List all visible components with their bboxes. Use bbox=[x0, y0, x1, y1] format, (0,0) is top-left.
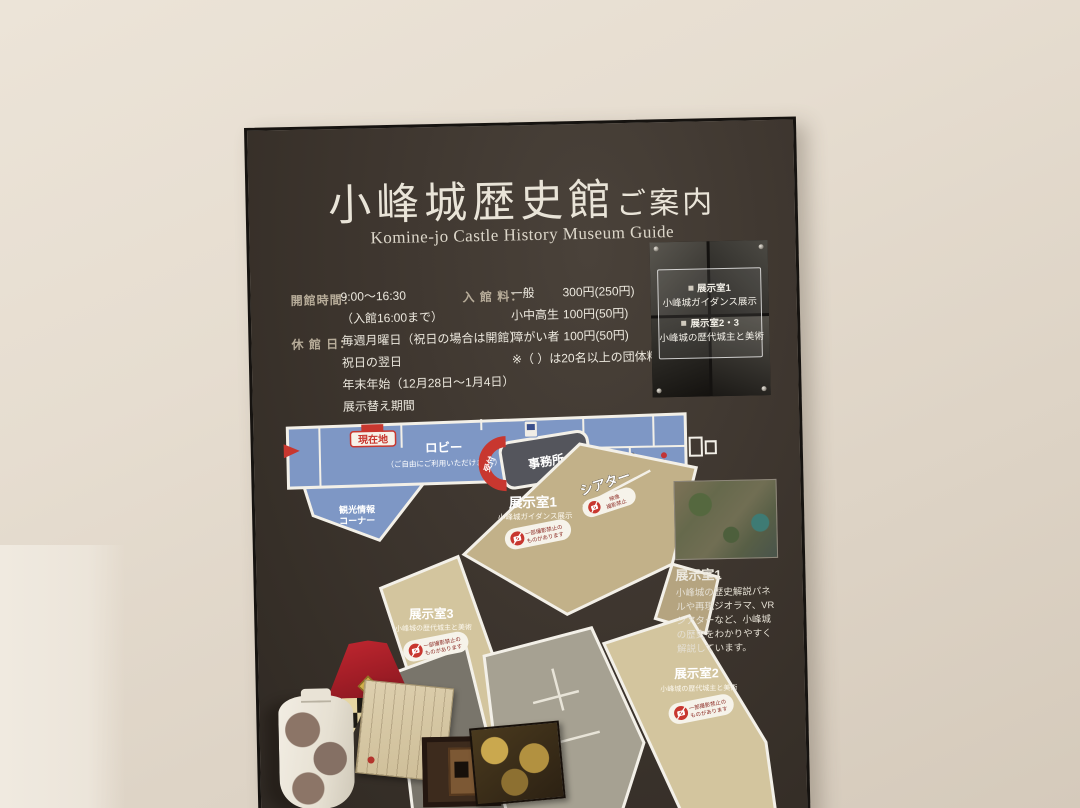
exhibit-photo-plaque: 展示室1 小峰城ガイダンス展示 展示室2・3 小峰城の歴代城主と美術 bbox=[649, 240, 770, 397]
hours-value: 9:00〜16:30 （入館16:00まで） bbox=[340, 284, 443, 330]
museum-sign-board: 小峰城歴史館ご案内 Komine-jo Castle History Museu… bbox=[244, 116, 811, 808]
admission-item: 小中高生 bbox=[511, 303, 563, 326]
gold-lacquer-box-photo bbox=[469, 720, 566, 806]
admission-item: 障がい者 bbox=[511, 325, 563, 348]
closed-line: 年末年始（12月28日〜1月4日） bbox=[342, 370, 522, 396]
admission-price: 100円(50円) bbox=[563, 302, 629, 325]
plaque-glass-plate: 展示室1 小峰城ガイダンス展示 展示室2・3 小峰城の歴代城主と美術 bbox=[657, 267, 763, 359]
closed-days-list: 毎週月曜日（祝日の場合は開館） 祝日の翌日 年末年始（12月28日〜1月4日） … bbox=[341, 326, 523, 418]
map-side-entry-walls bbox=[690, 437, 716, 456]
wall-corner-highlight bbox=[0, 545, 125, 808]
sign-title-suffix: ご案内 bbox=[616, 186, 716, 221]
screw-icon bbox=[657, 388, 662, 393]
admission-table: 一般 300円(250円) 小中高生 100円(50円) 障がい者 100円(5… bbox=[510, 279, 671, 370]
screw-icon bbox=[759, 244, 764, 249]
room1-detail-block: 展示室1 小峰城の歴史解説パネルや再現ジオラマ、VRシアターなど、小峰城の歴史を… bbox=[673, 479, 780, 657]
room-bullet-icon bbox=[688, 285, 693, 290]
small-facility-icon bbox=[524, 421, 537, 437]
lobby-label: ロビー bbox=[425, 439, 463, 455]
plaque-line: 小峰城ガイダンス展示 bbox=[659, 296, 761, 310]
admission-price: 300円(250円) bbox=[562, 280, 634, 304]
info-corner-label: コーナー bbox=[339, 515, 375, 526]
room-bullet-icon bbox=[681, 320, 686, 325]
admission-price: 100円(50円) bbox=[563, 324, 629, 347]
room1-label: 展示室1 bbox=[509, 494, 558, 511]
admission-note: ※（ ）は20名以上の団体料金 bbox=[512, 345, 671, 370]
photo-of-wall: 小峰城歴史館ご案内 Komine-jo Castle History Museu… bbox=[0, 0, 1080, 808]
room3-label: 展示室3 bbox=[409, 606, 454, 622]
plaque-line: 展示室2・3 bbox=[659, 317, 761, 331]
admission-item: 一般 bbox=[510, 281, 562, 304]
sign-title-main: 小峰城歴史館 bbox=[328, 177, 617, 230]
room2-label: 展示室2 bbox=[674, 665, 719, 681]
room1-detail-title: 展示室1 bbox=[675, 563, 778, 584]
plaque-line: 展示室1 bbox=[658, 282, 760, 296]
castle-diorama-photo bbox=[673, 479, 778, 560]
room1-detail-description: 小峰城の歴史解説パネルや再現ジオラマ、VRシアターなど、小峰城の歴史をわかりやす… bbox=[676, 585, 780, 657]
you-are-here-label: 現在地 bbox=[358, 433, 388, 447]
closed-line: 展示替え期間 bbox=[343, 392, 523, 418]
hours-note: （入館16:00まで） bbox=[341, 306, 443, 330]
hours-time: 9:00〜16:30 bbox=[340, 284, 442, 308]
plaque-line: 小峰城の歴代城主と美術 bbox=[659, 331, 761, 345]
screw-icon bbox=[762, 386, 767, 391]
ceramic-vase-photo bbox=[278, 695, 355, 808]
info-corner-label: 観光情報 bbox=[339, 503, 376, 515]
closed-line: 毎週月曜日（祝日の場合は開館） bbox=[341, 326, 521, 352]
screw-icon bbox=[654, 246, 659, 251]
